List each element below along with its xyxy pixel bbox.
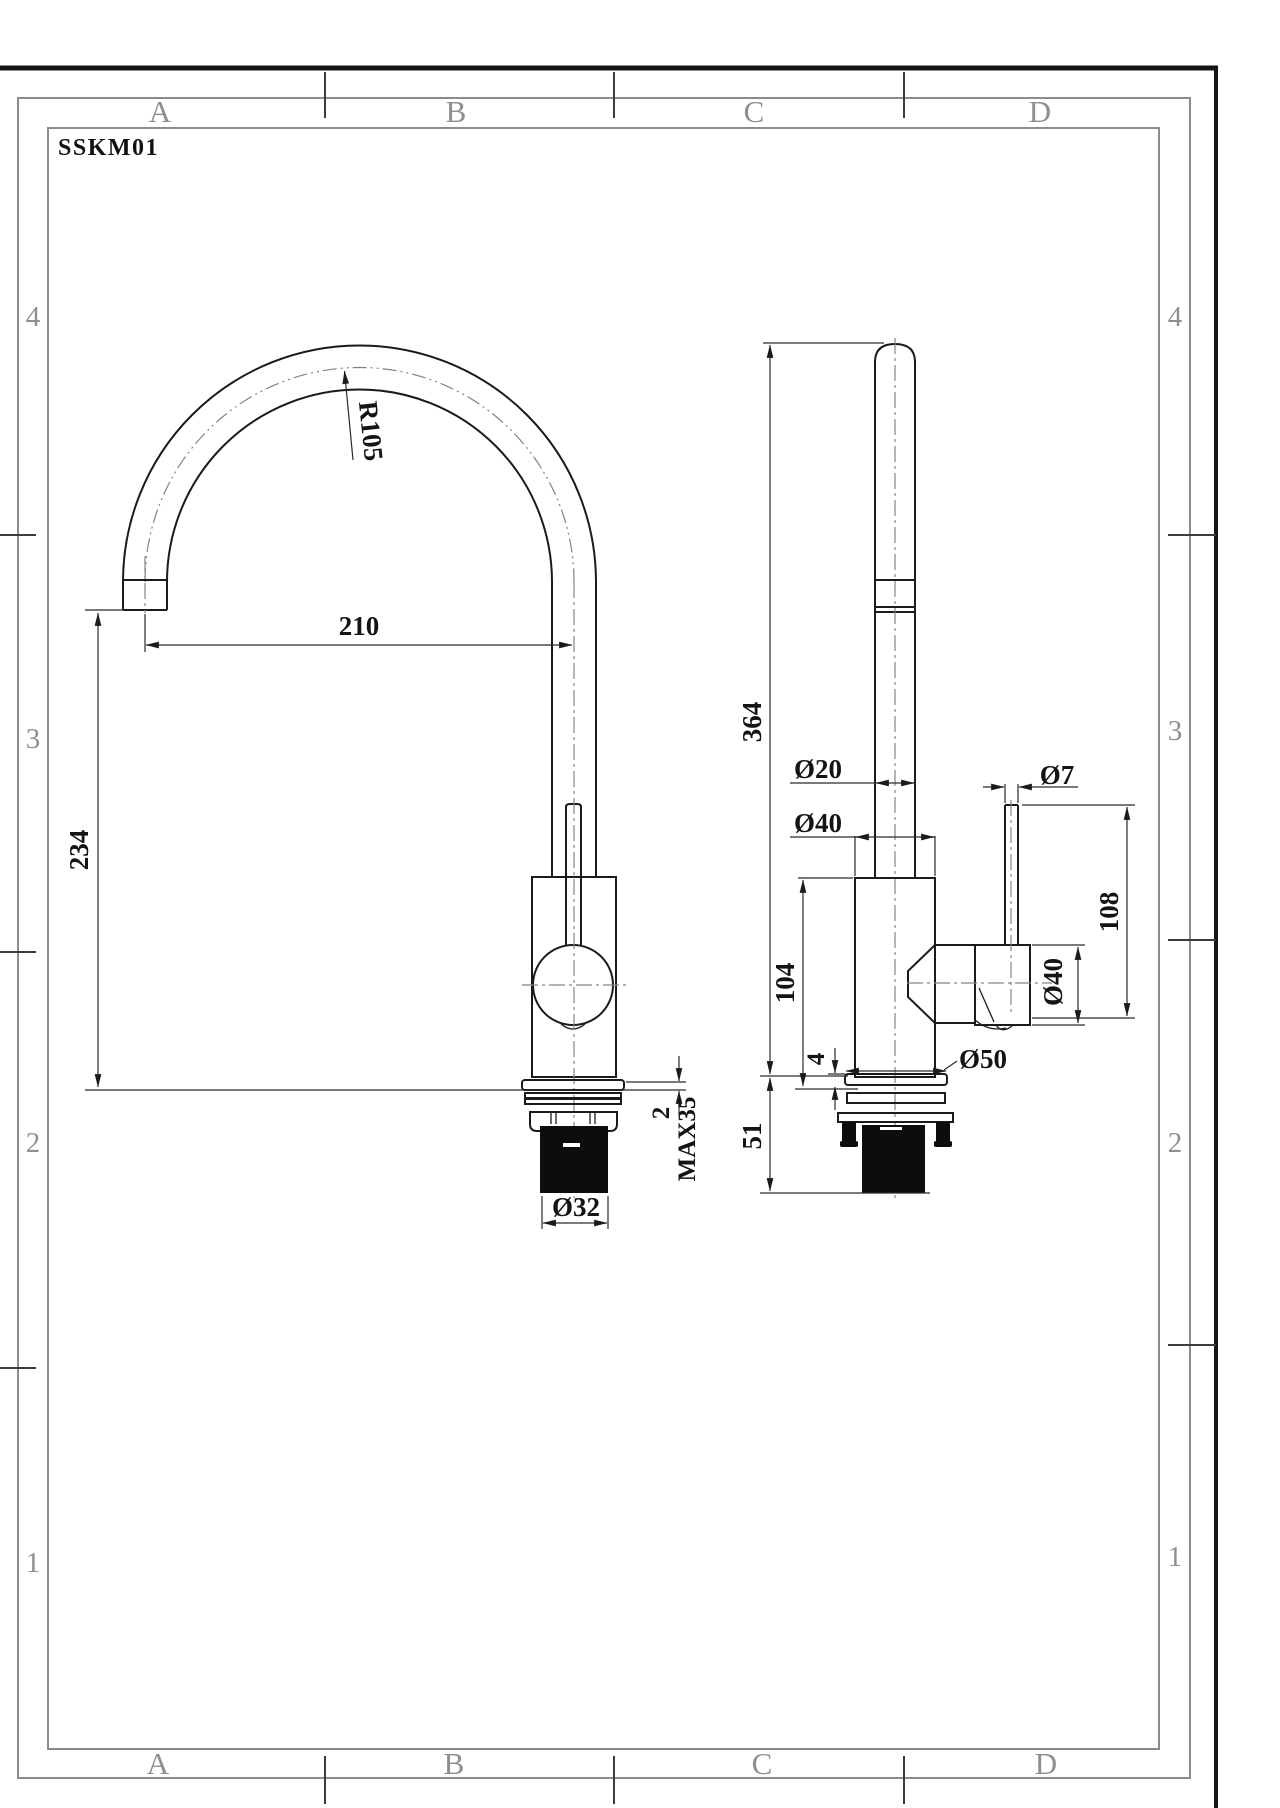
dim-spout-height-label: 234	[64, 830, 94, 871]
mounting-bolt-right	[936, 1122, 950, 1143]
dim-body-diameter: Ø40	[790, 808, 935, 876]
dim-spout-height: 234	[64, 613, 98, 1087]
dim-overall-height: 364	[737, 343, 884, 1074]
dim-flange-diameter-label: Ø50	[959, 1044, 1007, 1074]
zone-num-2-right: 2	[1168, 1127, 1183, 1159]
dim-handle-diameter-label: Ø40	[1038, 958, 1068, 1006]
drawing-sheet: A B C D A B C D 4 3 2 1 4 3 2 1 SSKM01	[0, 0, 1280, 1808]
zone-num-1-right: 1	[1168, 1541, 1183, 1573]
dim-spout-tube-diameter: Ø20	[790, 754, 915, 784]
dim-body-height-label: 104	[770, 963, 800, 1004]
dim-flange-thickness-label: 4	[803, 1052, 830, 1065]
side-view: 364 51 104 Ø20 Ø40	[737, 338, 1135, 1198]
dim-handle-diameter: Ø40	[1032, 945, 1085, 1025]
mounting-bolt-left	[842, 1122, 856, 1143]
dim-spout-tube-diameter-label: Ø20	[794, 754, 842, 784]
dim-overall-height-label: 364	[737, 702, 767, 743]
zone-letter-b-bottom: B	[444, 1746, 465, 1781]
dim-shank-diameter-label: Ø32	[552, 1192, 600, 1222]
zone-ticks	[0, 72, 1216, 1804]
inner-border	[48, 128, 1159, 1749]
threaded-shank-front	[540, 1126, 608, 1193]
zone-num-1-left: 1	[26, 1547, 41, 1579]
dim-lever-height-label: 108	[1094, 892, 1124, 933]
sheet-frame: A B C D A B C D 4 3 2 1 4 3 2 1 SSKM01	[0, 66, 1218, 1808]
front-view: 210 234 R105 2 MAX35 Ø32	[64, 346, 701, 1230]
deck-flange-front	[522, 1080, 624, 1090]
spout-outer-arc	[123, 346, 596, 583]
dim-spout-radius: R105	[345, 371, 390, 462]
outer-border	[18, 98, 1190, 1778]
dim-spout-reach: 210	[145, 611, 572, 652]
dim-plate-thickness-label: 2	[648, 1107, 675, 1120]
dim-spout-reach-label: 210	[339, 611, 380, 641]
dim-shank-diameter: Ø32	[542, 1192, 608, 1229]
dim-spout-radius-label: R105	[353, 400, 389, 463]
model-code: SSKM01	[58, 135, 159, 161]
zone-letter-a-bottom: A	[147, 1746, 170, 1781]
handle-boss	[908, 945, 975, 1023]
faucet-technical-drawing: A B C D A B C D 4 3 2 1 4 3 2 1 SSKM01	[0, 0, 1280, 1808]
zone-letter-d-top: D	[1029, 94, 1051, 129]
zone-num-4-right: 4	[1168, 301, 1183, 333]
zone-num-2-left: 2	[26, 1127, 41, 1159]
zone-num-4-left: 4	[26, 301, 41, 333]
zone-letter-b-top: B	[446, 94, 467, 129]
zone-letter-a-top: A	[149, 94, 172, 129]
dim-lever-rod-diameter: Ø7	[983, 760, 1078, 803]
threaded-shank-side	[862, 1125, 925, 1193]
zone-num-3-right: 3	[1168, 715, 1183, 747]
dim-flange-diameter: Ø50	[846, 1044, 1007, 1074]
zone-letter-c-bottom: C	[752, 1746, 773, 1781]
dim-flange-thickness: 4	[803, 1048, 845, 1110]
handle-collar	[975, 945, 1030, 1025]
deck-flange-side	[845, 1074, 947, 1085]
dim-under-deck-label: 51	[737, 1123, 767, 1150]
dim-deck-plate: 2 MAX35	[626, 1056, 701, 1181]
zone-letter-d-bottom: D	[1035, 1746, 1057, 1781]
dim-body-diameter-label: Ø40	[794, 808, 842, 838]
dim-max-mount-label: MAX35	[674, 1097, 701, 1182]
zone-num-3-left: 3	[26, 723, 41, 755]
zone-letter-c-top: C	[744, 94, 765, 129]
dim-lever-rod-diameter-label: Ø7	[1040, 760, 1075, 790]
